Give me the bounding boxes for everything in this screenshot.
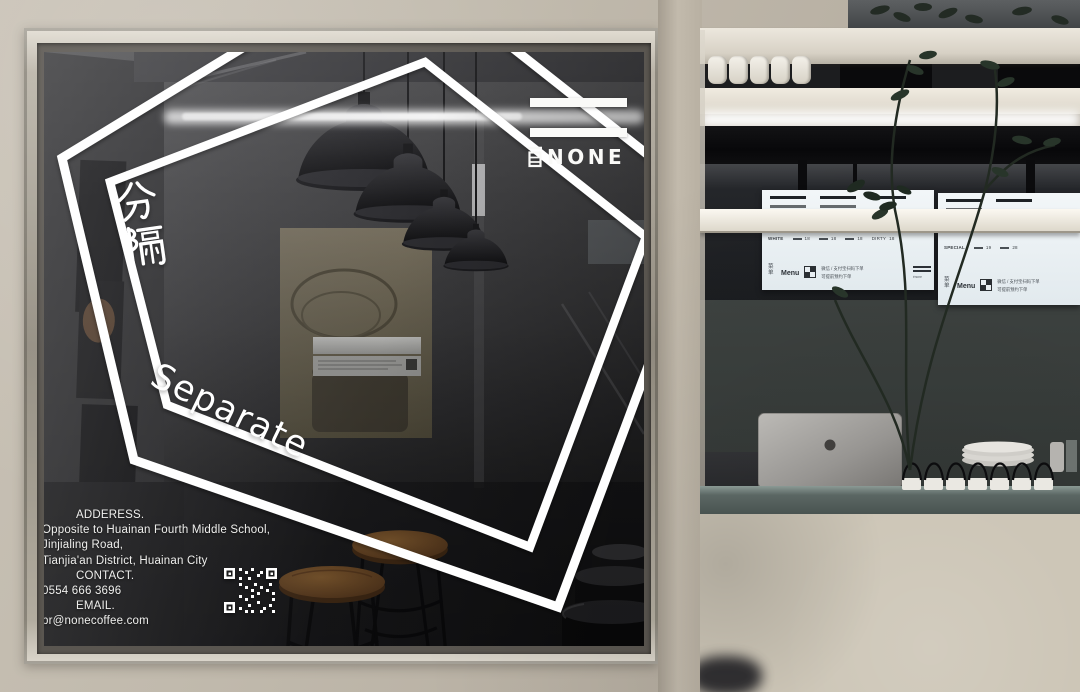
menu-category-row: WHITE 18 18 18 DIRTY18 <box>768 236 930 241</box>
menu-item-dirty: DIRTY18 <box>872 236 895 241</box>
cup-rack <box>902 464 1053 491</box>
address-line: Opposite to Huainan Fourth Middle School… <box>44 523 322 538</box>
awning-hinge <box>708 56 811 84</box>
menu-item: 18 <box>819 236 836 241</box>
menu-line-dashes <box>946 199 1032 202</box>
order-notes: 微信 / 支付宝扫码下单 可提前预约下单 <box>997 279 1039 293</box>
email-address: pr@nonecoffee.com <box>44 614 322 629</box>
right-frame-edge <box>700 30 705 516</box>
order-qr-icon <box>980 279 992 291</box>
menu-line-dashes <box>770 205 856 208</box>
menu-item: 28 <box>1000 245 1017 250</box>
email-heading: EMAIL. <box>44 599 322 614</box>
counter-items <box>900 440 1080 496</box>
order-notes: 微信 / 支付宝扫码下单 可提前预约下单 <box>821 266 863 280</box>
glassware <box>1066 440 1077 472</box>
left-window-glass: Separate NONE ADDERESS. Opposite to Huai… <box>44 52 644 646</box>
wall-mullion <box>658 0 702 692</box>
gap-pane <box>998 64 1080 88</box>
logo-bar-bottom <box>530 128 627 137</box>
menu-item: 18 <box>845 236 862 241</box>
menu-footer-row: 菜单 Menu 微信 / 支付宝扫码下单 可提前预约下单 énone <box>768 264 931 280</box>
menu-category-row: SPECIAL 19 28 <box>944 245 1076 250</box>
category-label: SPECIAL <box>944 245 965 250</box>
logo-bar-top <box>530 98 627 107</box>
silver-jug <box>1050 442 1064 472</box>
menu-item: 18 <box>793 236 810 241</box>
menu-label-en: Menu <box>957 283 975 293</box>
menu-footer-row: 菜单 Menu 微信 / 支付宝扫码下单 可提前预约下单 <box>944 277 1077 293</box>
brand-logo: NONE <box>527 98 644 169</box>
logo-word: NONE <box>547 145 625 169</box>
menu-label-cn: 菜单 <box>944 277 952 293</box>
contact-heading: CONTACT. <box>44 569 322 584</box>
upper-dark-window <box>848 0 1080 30</box>
counter-front <box>700 514 1080 692</box>
menu-item: 19 <box>974 245 991 250</box>
address-line: Tianjia'an District, Huainan City <box>44 554 322 569</box>
menu-label-cn: 菜单 <box>768 264 776 280</box>
logo-prefix-glyph-icon <box>527 146 543 168</box>
white-ledge <box>700 209 1080 233</box>
gap-pane <box>840 64 932 88</box>
menu-board-1: WHITE 18 18 18 DIRTY18 菜单 Menu 微信 / 支付宝扫… <box>762 190 934 290</box>
cn-char-ge <box>128 224 165 269</box>
address-line: Jinjialing Road, <box>44 538 322 553</box>
address-block: ADDERESS. Opposite to Huainan Fourth Mid… <box>44 508 322 630</box>
menu-label-en: Menu <box>781 270 799 280</box>
category-label: WHITE <box>768 236 784 241</box>
counter-shadow <box>700 656 762 692</box>
phone-number: 0554 666 3696 <box>44 584 322 599</box>
board-brand-mark: énone <box>913 266 931 280</box>
black-signage-bar <box>700 126 1080 166</box>
right-storefront-section: WHITE 18 18 18 DIRTY18 菜单 Menu 微信 / 支付宝扫… <box>700 0 1080 692</box>
cn-char-fen <box>117 181 157 221</box>
menu-line-dashes <box>770 196 906 199</box>
address-heading: ADDERESS. <box>44 508 322 523</box>
storefront-scene: Separate NONE ADDERESS. Opposite to Huai… <box>0 0 1080 692</box>
apple-logo-icon <box>825 440 836 451</box>
order-qr-icon <box>804 266 816 278</box>
